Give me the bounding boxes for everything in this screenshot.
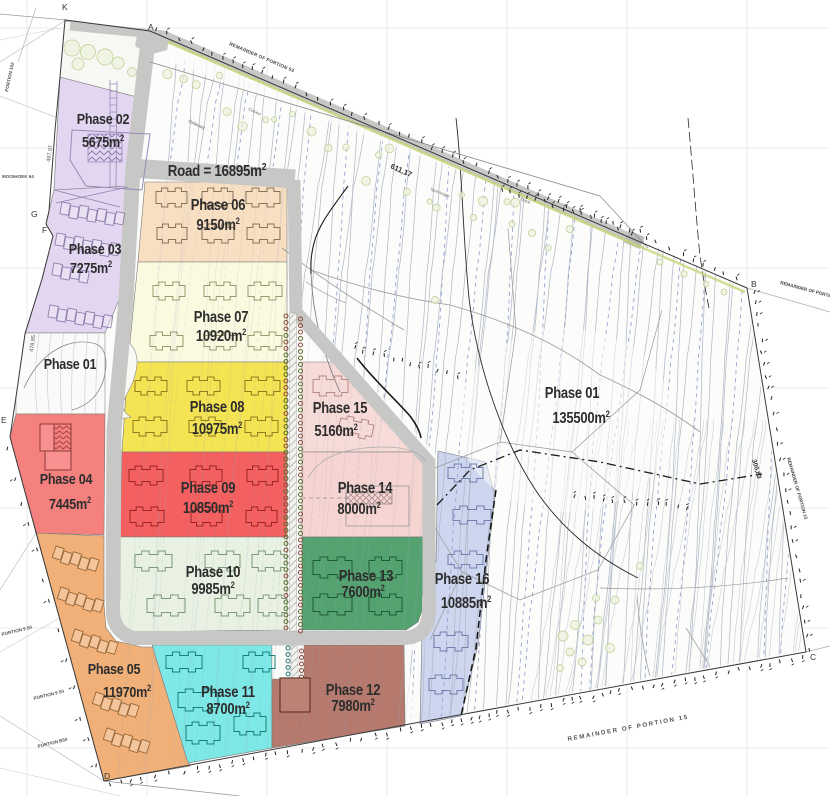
- svg-text:Phase 03: Phase 03: [69, 240, 122, 257]
- svg-text:7980m2: 7980m2: [331, 696, 375, 715]
- svg-text:Phase 06: Phase 06: [191, 197, 246, 214]
- svg-text:8000m2: 8000m2: [337, 499, 381, 518]
- svg-text:Phase 01: Phase 01: [44, 355, 97, 372]
- svg-text:7445m2: 7445m2: [49, 494, 92, 512]
- svg-text:Phase 07: Phase 07: [194, 309, 249, 326]
- svg-text:5675m2: 5675m2: [82, 132, 125, 150]
- svg-text:10885m2: 10885m2: [441, 593, 492, 612]
- svg-text:Phase 14: Phase 14: [338, 480, 393, 497]
- svg-text:MOOIHOEK 64: MOOIHOEK 64: [2, 174, 34, 179]
- svg-text:K: K: [62, 2, 68, 12]
- svg-text:Phase 05: Phase 05: [88, 660, 141, 677]
- svg-text:Phase 01: Phase 01: [545, 385, 600, 402]
- svg-text:E: E: [1, 415, 7, 425]
- svg-text:G: G: [31, 209, 38, 219]
- svg-text:10920m2: 10920m2: [196, 326, 247, 345]
- svg-text:9150m2: 9150m2: [196, 215, 240, 234]
- svg-text:135500m2: 135500m2: [552, 408, 610, 427]
- svg-text:B: B: [751, 279, 757, 289]
- svg-text:Phase 08: Phase 08: [190, 399, 245, 416]
- svg-text:Phase 15: Phase 15: [313, 400, 368, 417]
- svg-text:11970m2: 11970m2: [103, 682, 152, 700]
- svg-text:Phase 02: Phase 02: [77, 110, 130, 127]
- svg-text:F: F: [42, 225, 47, 235]
- svg-text:Phase 09: Phase 09: [181, 480, 236, 497]
- svg-text:7600m2: 7600m2: [341, 582, 385, 601]
- svg-text:5160m2: 5160m2: [314, 421, 358, 440]
- svg-text:Phase 04: Phase 04: [40, 470, 93, 487]
- svg-text:D: D: [104, 771, 110, 781]
- svg-text:10850m2: 10850m2: [183, 498, 234, 517]
- svg-text:C: C: [810, 652, 816, 662]
- svg-text:Road = 16895m2: Road = 16895m2: [168, 161, 267, 180]
- svg-text:A: A: [148, 22, 154, 32]
- svg-text:Phase 13: Phase 13: [339, 568, 394, 585]
- svg-text:9985m2: 9985m2: [191, 579, 235, 598]
- svg-text:10975m2: 10975m2: [192, 419, 243, 438]
- svg-text:7275m2: 7275m2: [70, 258, 113, 276]
- svg-text:Phase 16: Phase 16: [435, 571, 490, 588]
- svg-text:8700m2: 8700m2: [206, 699, 250, 718]
